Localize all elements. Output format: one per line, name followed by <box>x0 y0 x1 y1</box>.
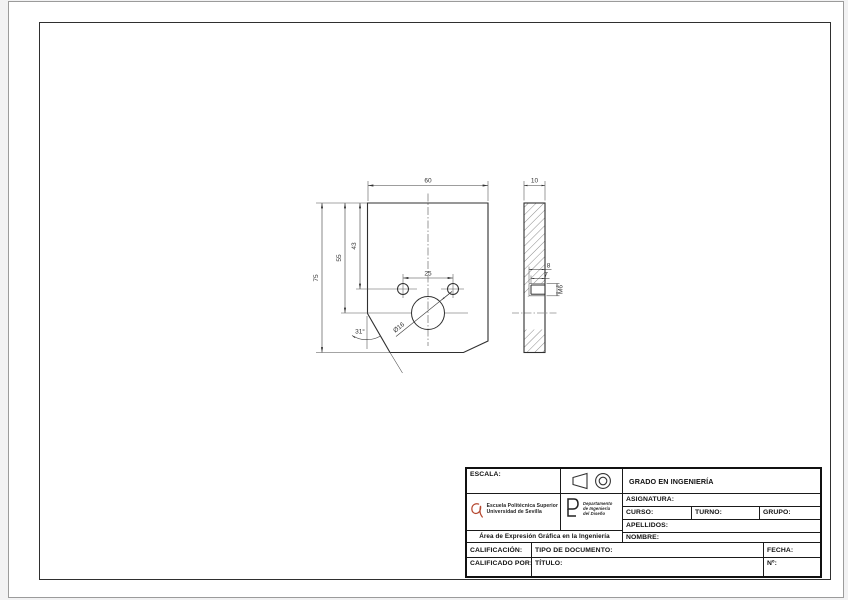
titleblock-cell-grupo: GRUPO: <box>760 507 820 520</box>
dept-line3: del Diseño <box>583 511 605 516</box>
eps-name-line2: Universidad de Sevilla <box>487 509 542 515</box>
titleblock-cell-dept-logo: Departamento de Ingeniería del Diseño <box>561 494 623 531</box>
front-view: 60 75 55 43 25 Ø16 31° <box>313 178 488 374</box>
titleblock-cell-numero: Nº: <box>764 558 820 576</box>
dim-thread-depth-label: 7 <box>544 272 548 279</box>
fecha-label: FECHA: <box>764 543 820 554</box>
titleblock-cell-calificado-por: CALIFICADO POR: <box>467 558 532 576</box>
titleblock-cell-escala: ESCALA: <box>467 469 561 494</box>
titleblock-cell-area: Área de Expresión Gráfica en la Ingenier… <box>467 531 623 543</box>
dim-height-label: 75 <box>313 274 320 282</box>
titleblock-cell-eps-logo: Escuela Politécnica Superior Universidad… <box>467 494 561 531</box>
titleblock-cell-calificacion: CALIFICACIÓN: <box>467 543 532 558</box>
tipo-documento-label: TIPO DE DOCUMENTO: <box>532 543 763 554</box>
titleblock-cell-fecha: FECHA: <box>764 543 820 558</box>
titleblock-cell-curso: CURSO: <box>623 507 692 520</box>
dim-thread-size-label: M6 <box>558 285 565 294</box>
dim-43-label: 43 <box>351 242 358 250</box>
dim-hole-spacing-label: 25 <box>424 271 432 278</box>
asignatura-label: ASIGNATURA: <box>623 494 820 503</box>
apellidos-label: APELLIDOS: <box>623 520 820 529</box>
side-section-view: M6 8 7 10 <box>512 178 565 353</box>
dim-55-label: 55 <box>336 254 343 262</box>
dim-drill-depth-label: 8 <box>547 263 551 270</box>
area-line: Área de Expresión Gráfica en la Ingenier… <box>479 533 610 540</box>
dim-thickness-label: 10 <box>531 178 539 185</box>
turno-label: TURNO: <box>692 507 759 516</box>
titleblock-cell-apellidos: APELLIDOS: <box>623 520 820 533</box>
titleblock-cell-grado: GRADO EN INGENIERÍA <box>623 469 820 494</box>
titulo-label: TÍTULO: <box>532 558 763 567</box>
dept-logo-icon <box>564 497 580 519</box>
grupo-label: GRUPO: <box>760 507 820 516</box>
nombre-label: NOMBRE: <box>623 533 820 541</box>
escala-label: ESCALA: <box>467 469 560 478</box>
titleblock-cell-turno: TURNO: <box>692 507 760 520</box>
dim-width-label: 60 <box>424 178 432 185</box>
title-block: ESCALA: GRADO EN INGENIERÍA Escuela Poli… <box>465 467 822 578</box>
calificado-por-label: CALIFICADO POR: <box>467 558 531 567</box>
dim-chamfer-angle-label: 31° <box>355 328 365 336</box>
titleblock-cell-nombre: NOMBRE: <box>623 533 820 543</box>
numero-label: Nº: <box>764 558 820 567</box>
projection-method-icon <box>561 469 623 493</box>
dim-big-hole-diameter-label: Ø16 <box>392 321 406 334</box>
curso-label: CURSO: <box>623 507 691 516</box>
titleblock-cell-titulo: TÍTULO: <box>532 558 764 576</box>
grado-title: GRADO EN INGENIERÍA <box>623 469 820 486</box>
titleblock-cell-asignatura: ASIGNATURA: <box>623 494 820 507</box>
calificacion-label: CALIFICACIÓN: <box>467 543 531 554</box>
titleblock-cell-tipo-documento: TIPO DE DOCUMENTO: <box>532 543 764 558</box>
titleblock-cell-projection-symbol <box>561 469 623 494</box>
eps-logo-icon <box>470 497 484 521</box>
